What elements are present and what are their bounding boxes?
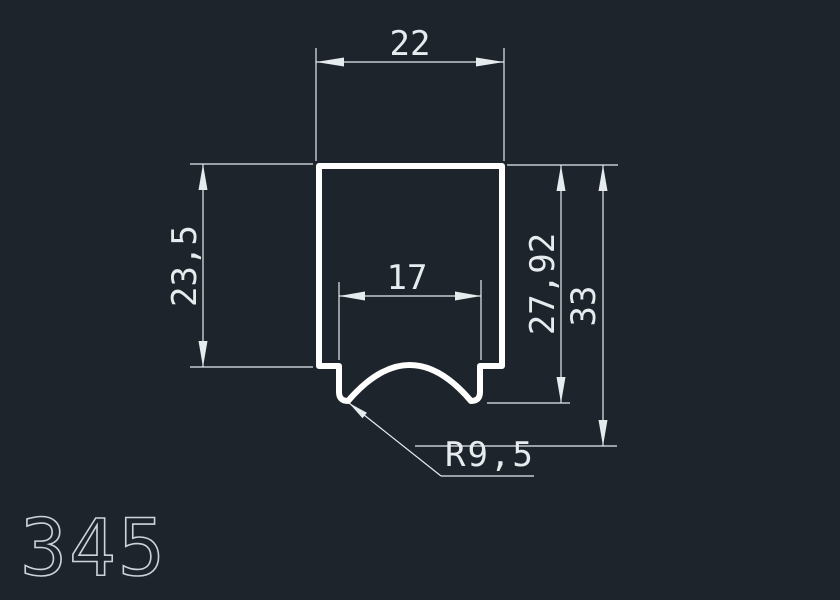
dim-arrow-up xyxy=(199,164,208,190)
dim-arrow-left xyxy=(316,58,344,67)
dim-left-height: 23,5 xyxy=(165,164,313,367)
leader-line-diagonal xyxy=(349,403,441,476)
part-number-label: 345 xyxy=(20,504,167,594)
dim-arrow-right xyxy=(455,292,481,301)
cad-drawing-canvas: 22 23,5 17 27,92 xyxy=(0,0,840,600)
dim-arrow-down xyxy=(599,420,608,446)
dim-arrow-right xyxy=(476,58,504,67)
dim-arrow-left xyxy=(339,292,365,301)
dim-label-total-height: 33 xyxy=(564,286,604,327)
dim-arrow-up xyxy=(599,165,608,191)
dim-groove-width: 17 xyxy=(339,258,481,360)
dim-arrow-up xyxy=(557,165,566,191)
dim-label-groove-width: 17 xyxy=(387,258,428,298)
dim-arrow-down xyxy=(557,377,566,403)
dim-outer-width: 22 xyxy=(316,24,504,161)
dim-inner-right-height: 27,92 xyxy=(487,165,618,403)
dim-arrow-down xyxy=(199,341,208,367)
dim-total-height: 33 xyxy=(415,165,617,446)
radius-leader: R9,5 xyxy=(349,403,535,476)
dim-label-inner-right-height: 27,92 xyxy=(523,233,563,335)
dim-label-outer-width: 22 xyxy=(390,24,431,64)
dim-label-left-height: 23,5 xyxy=(165,225,205,307)
cad-viewport: 22 23,5 17 27,92 xyxy=(0,0,840,600)
dim-label-groove-radius: R9,5 xyxy=(445,435,535,475)
